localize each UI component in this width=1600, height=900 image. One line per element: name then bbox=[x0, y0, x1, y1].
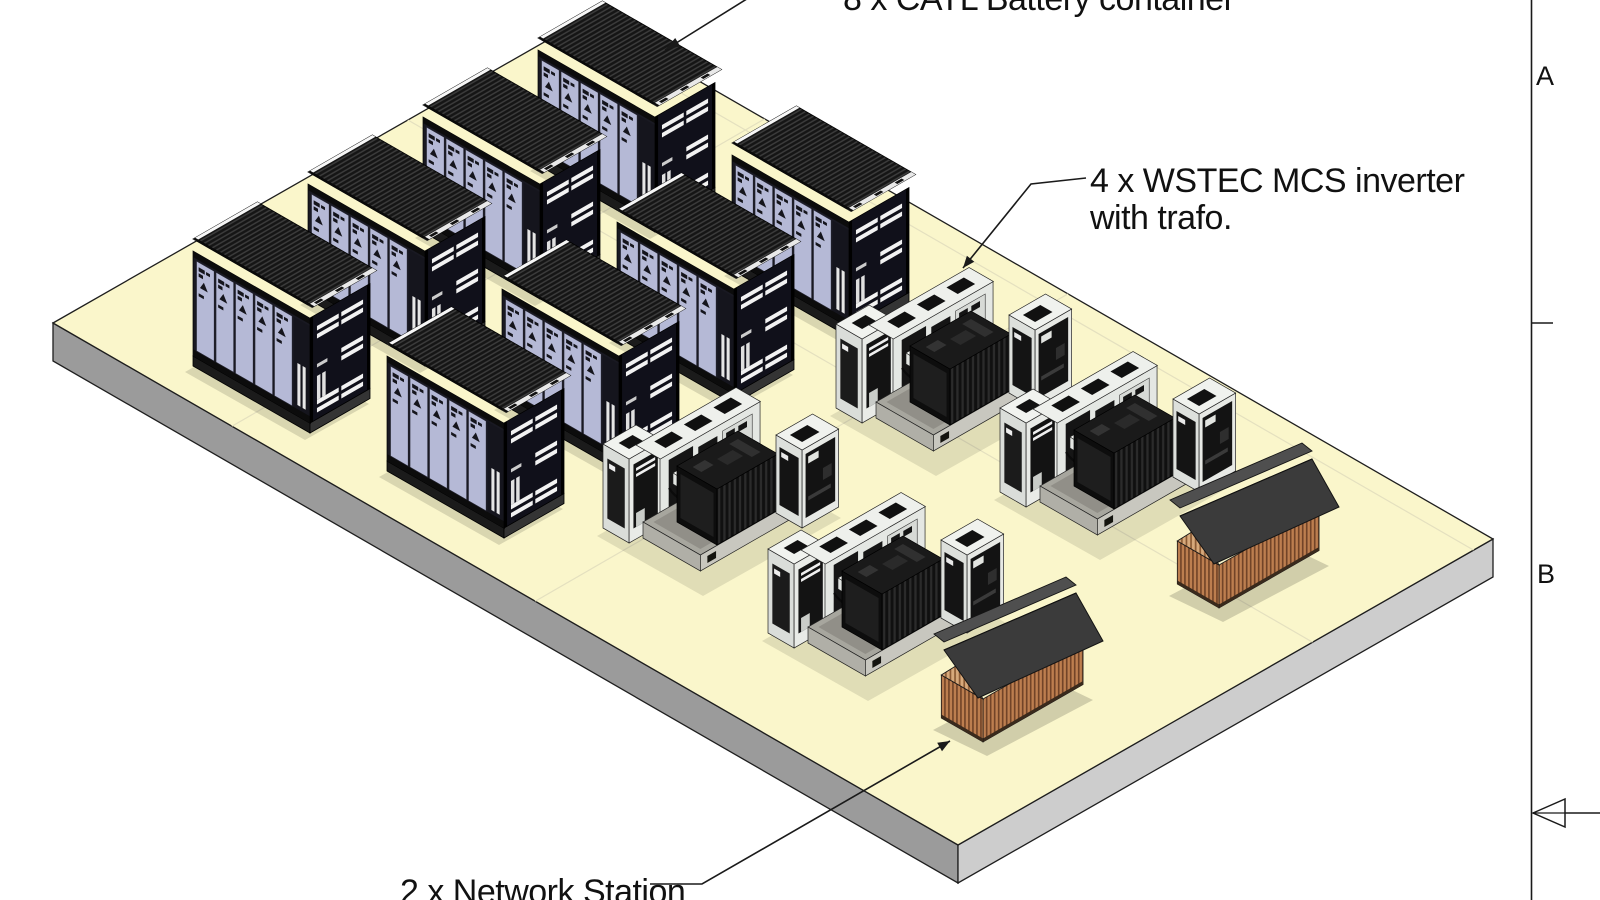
drawing-sheet: 8 x CATL Battery container 4 x WSTEC MCS… bbox=[0, 0, 1600, 900]
label-inverter-line2: with trafo. bbox=[1089, 199, 1232, 237]
label-battery-container: 8 x CATL Battery container bbox=[843, 0, 1235, 18]
frame-zone-b: B bbox=[1537, 559, 1555, 589]
leader-battery bbox=[665, 0, 845, 50]
drawing-canvas: 8 x CATL Battery container 4 x WSTEC MCS… bbox=[0, 0, 1600, 900]
drawing-frame: A B bbox=[1532, 0, 1600, 900]
label-network-station: 2 x Network Station bbox=[400, 873, 685, 900]
label-inverter-line1: 4 x WSTEC MCS inverter bbox=[1090, 162, 1465, 200]
frame-zone-a: A bbox=[1536, 61, 1554, 91]
